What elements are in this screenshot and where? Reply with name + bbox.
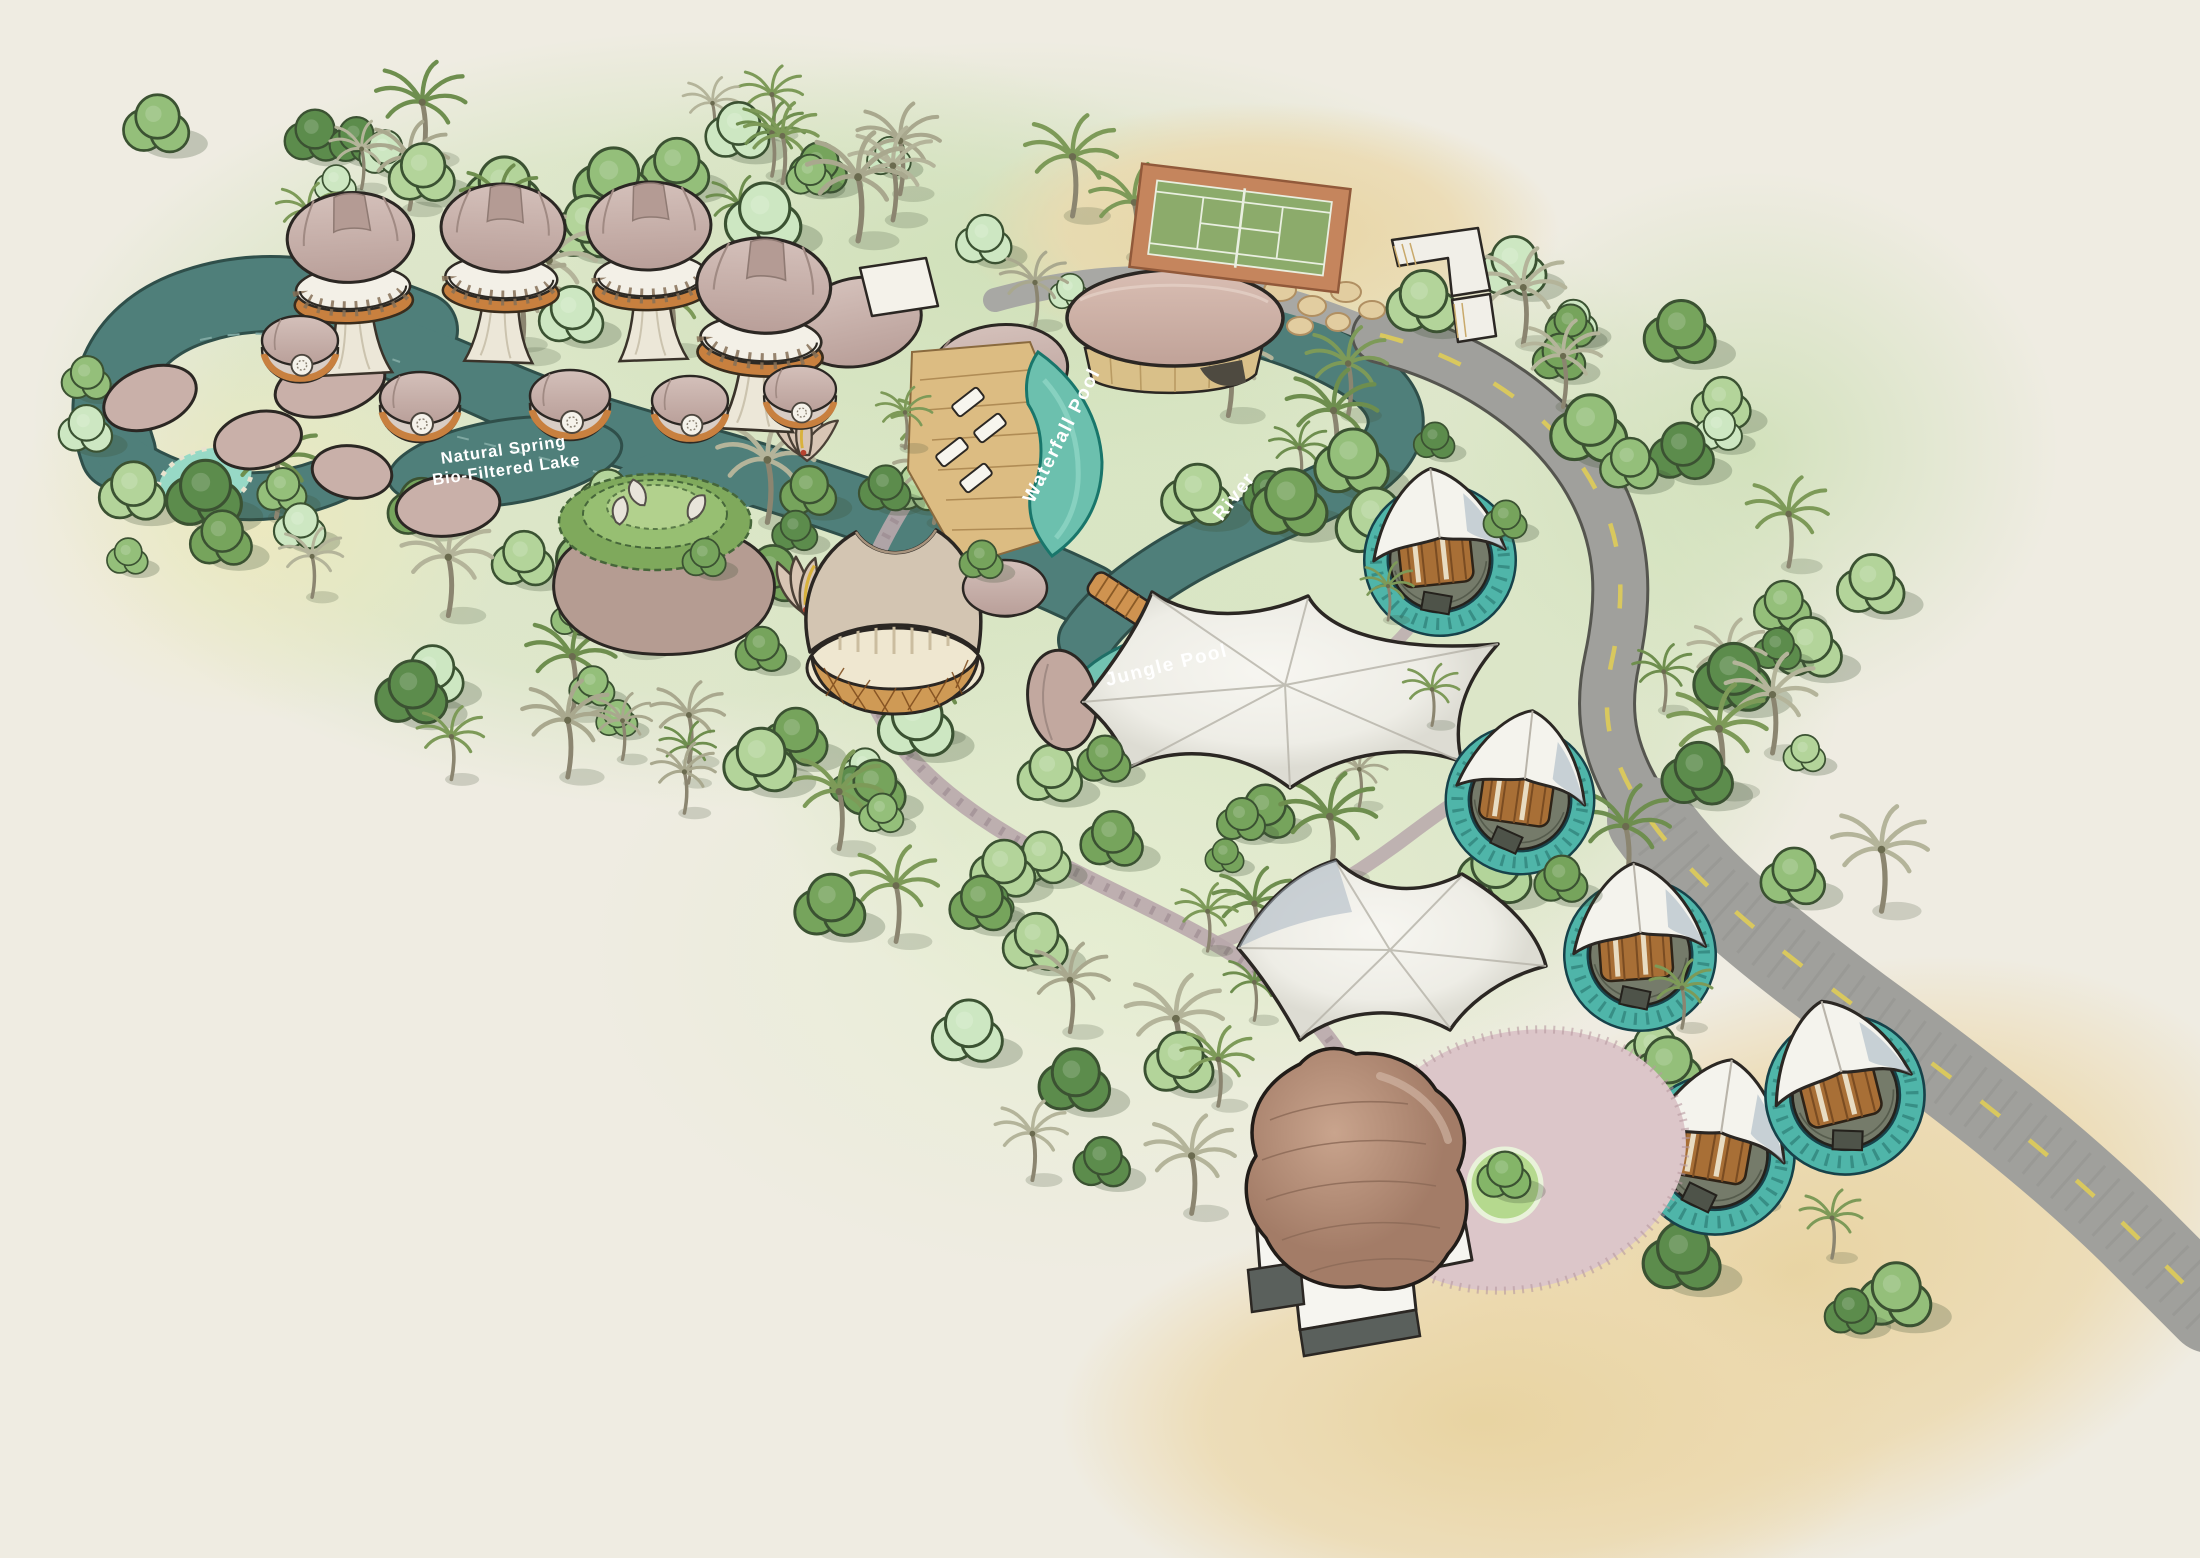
lake-villa-small xyxy=(380,372,460,442)
lake-villa-small xyxy=(764,366,836,429)
map-canvas: Natural Spring Bio-Filtered Lake Waterfa… xyxy=(0,0,2200,1558)
white-sail-canopy xyxy=(860,258,938,316)
lake-villa-small xyxy=(530,370,610,440)
nest-pavilion xyxy=(806,530,983,714)
resort-map-illustration: Natural Spring Bio-Filtered Lake Waterfa… xyxy=(0,0,2200,1558)
terraced-garden xyxy=(554,474,775,655)
lake-villa-small xyxy=(652,376,728,443)
lake-villa-small xyxy=(262,316,338,383)
